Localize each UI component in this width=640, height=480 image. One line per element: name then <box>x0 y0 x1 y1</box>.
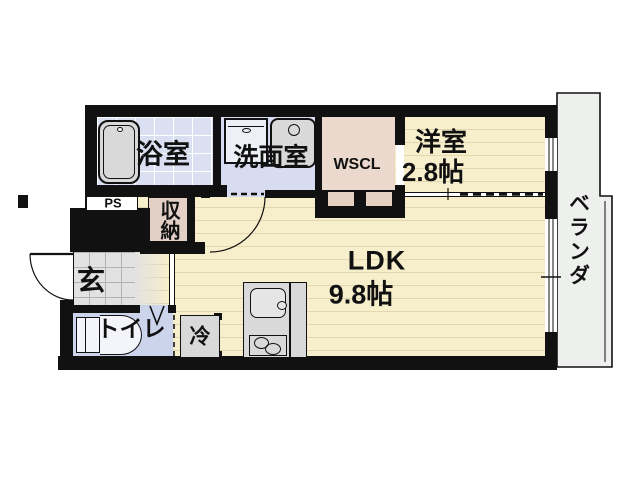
kitchen-sink-icon <box>250 288 286 318</box>
partition-western-room-ldk <box>405 192 545 197</box>
wall-washroom-door-jamb <box>201 190 210 198</box>
storage-label: 収納 <box>158 200 178 240</box>
wall-exterior-stub <box>18 195 28 208</box>
western-room-label: 洋室 <box>415 129 467 155</box>
entrance-door-arc <box>30 254 73 300</box>
wall-right-b <box>545 172 557 218</box>
wall-bath-washroom <box>213 117 221 187</box>
bathroom-label: 浴室 <box>136 142 190 169</box>
wall-right-a <box>545 105 557 137</box>
washroom-label: 洗面室 <box>233 146 308 171</box>
wall-toilet-corner <box>168 305 176 313</box>
partition-hall-ldk <box>169 254 175 305</box>
wall-washroom-door-right <box>265 190 322 198</box>
wall-toilet-top <box>62 305 140 313</box>
wall-bottom <box>58 356 557 370</box>
wscl-door-panel <box>365 191 393 207</box>
ldk-label: LDK <box>348 248 407 275</box>
toilet-label: トイレ <box>97 318 166 341</box>
wscl-label: WSCL <box>333 157 380 173</box>
wall-top <box>85 105 557 117</box>
bathtub-icon <box>98 120 140 184</box>
floor-plan: 浴室 洗面室 WSCL 洋室 2.8帖 ベランダ PS 収納 玄 LDK 9.8… <box>0 0 640 480</box>
veranda-label: ベランダ <box>568 192 589 288</box>
stove-icon <box>249 335 287 356</box>
ldk-size: 9.8帖 <box>329 282 394 309</box>
entrance-label: 玄 <box>77 267 105 295</box>
wall-wscl-right-bottom <box>395 185 405 218</box>
pipe-space-label: PS <box>104 197 121 210</box>
wscl-door-panel <box>327 191 355 207</box>
wall-right-c <box>545 333 557 362</box>
window-ldk-balcony-door <box>545 218 557 333</box>
window-western-room <box>545 137 557 172</box>
wall-wscl-right-top <box>395 117 405 145</box>
wall-block-left <box>70 208 150 252</box>
entrance-tile-fade <box>135 252 169 305</box>
refrigerator-label: 冷 <box>190 327 211 348</box>
kitchen-counter <box>243 282 307 358</box>
western-room-size: 2.8帖 <box>402 159 464 185</box>
entrance-edge-line <box>73 252 74 305</box>
wall-storage-bottom <box>140 242 205 254</box>
